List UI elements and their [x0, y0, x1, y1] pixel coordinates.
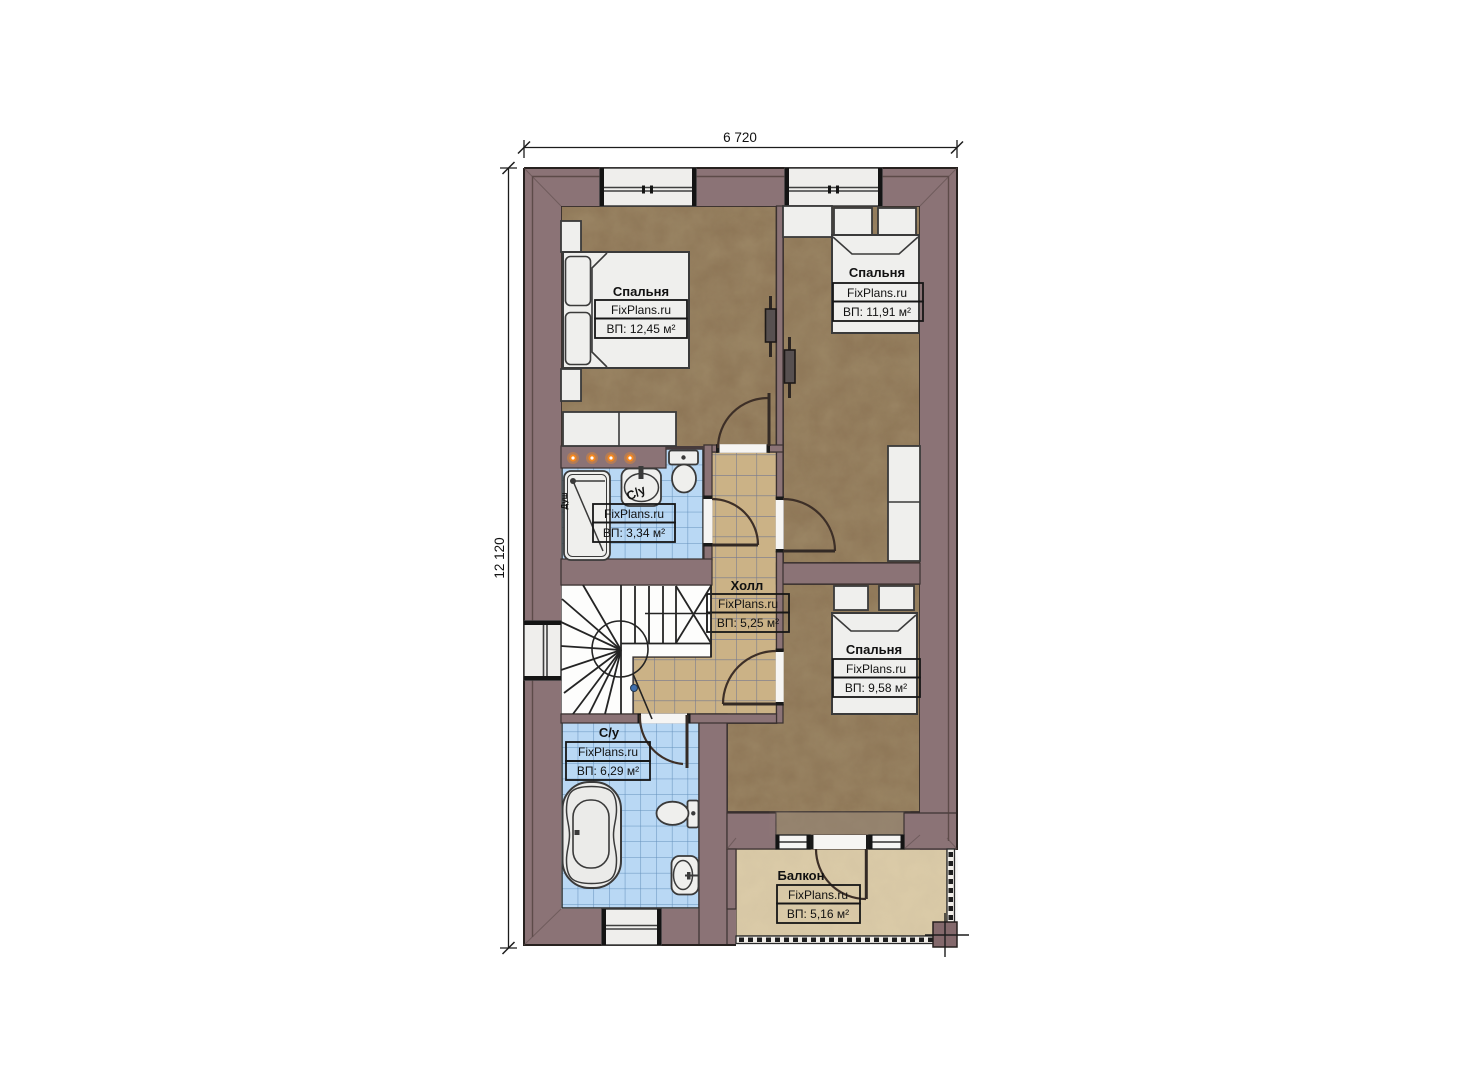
- svg-text:Спальня: Спальня: [846, 642, 902, 657]
- svg-text:ВП: 11,91 м²: ВП: 11,91 м²: [843, 305, 911, 319]
- svg-text:Душ: Душ: [560, 492, 569, 509]
- svg-text:ВП: 3,34 м²: ВП: 3,34 м²: [603, 526, 665, 540]
- svg-text:ВП: 5,25 м²: ВП: 5,25 м²: [717, 616, 779, 630]
- svg-text:FixPlans.ru: FixPlans.ru: [847, 286, 907, 300]
- svg-text:ВП: 9,58 м²: ВП: 9,58 м²: [845, 681, 907, 695]
- svg-text:Балкон: Балкон: [778, 868, 825, 883]
- svg-text:ВП: 6,29 м²: ВП: 6,29 м²: [577, 764, 639, 778]
- svg-text:Холл: Холл: [731, 578, 764, 593]
- svg-text:FixPlans.ru: FixPlans.ru: [604, 507, 664, 521]
- svg-text:6 720: 6 720: [723, 130, 757, 145]
- svg-text:12 120: 12 120: [492, 537, 507, 578]
- svg-text:Спальня: Спальня: [613, 284, 669, 299]
- svg-text:FixPlans.ru: FixPlans.ru: [846, 662, 906, 676]
- svg-text:FixPlans.ru: FixPlans.ru: [578, 745, 638, 759]
- svg-text:FixPlans.ru: FixPlans.ru: [611, 303, 671, 317]
- svg-text:С/у: С/у: [599, 725, 620, 740]
- svg-text:Спальня: Спальня: [849, 265, 905, 280]
- svg-text:FixPlans.ru: FixPlans.ru: [788, 888, 848, 902]
- svg-text:FixPlans.ru: FixPlans.ru: [718, 597, 778, 611]
- svg-text:ВП: 12,45 м²: ВП: 12,45 м²: [607, 322, 676, 336]
- svg-text:ВП: 5,16 м²: ВП: 5,16 м²: [787, 907, 849, 921]
